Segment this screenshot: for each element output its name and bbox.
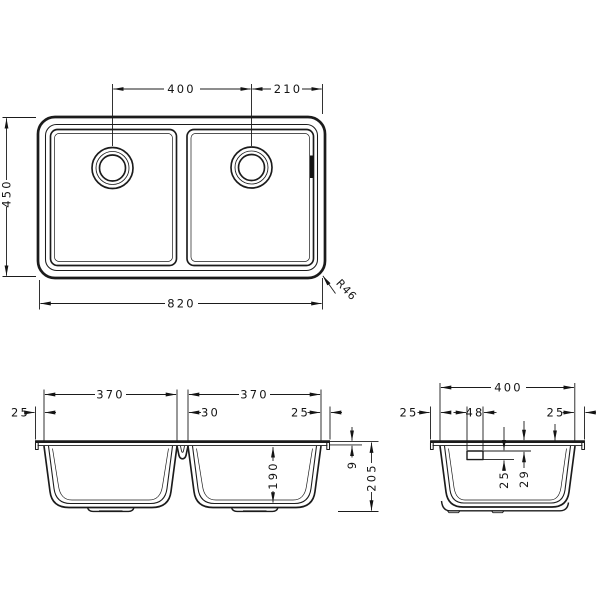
side-left-lip — [431, 443, 434, 450]
front-right-lip — [327, 443, 330, 450]
dim-bowl1-width: 370 — [45, 387, 176, 401]
dim-bowl2-width: 370 — [189, 387, 320, 401]
dim-drain-height: 25 — [497, 427, 511, 489]
dim-label-drain-height: 25 — [497, 470, 511, 489]
dim-overall-depth: 450 — [0, 118, 36, 277]
left-bowl-outline — [51, 130, 177, 266]
top-view: 400 210 450 820 R46 — [0, 82, 359, 311]
dim-rim-to-drain: 29 — [517, 421, 531, 488]
dim-label-corner-radius: R46 — [333, 277, 359, 304]
front-left-lip — [36, 443, 39, 450]
outer-rim-outline — [38, 117, 325, 278]
dim-label-side-left-rim: 25 — [399, 405, 418, 419]
flange-inner-outline — [46, 125, 318, 271]
front-right-bowl — [188, 446, 321, 508]
dim-drain-spacing: 400 210 — [113, 82, 323, 146]
dim-drain-width: 48 — [454, 405, 497, 419]
dim-label-drain-to-edge: 210 — [274, 82, 303, 96]
dim-label-overall-depth: 450 — [0, 179, 13, 208]
dim-front-right-rim: 25 — [291, 405, 342, 419]
dim-label-bowl-depth: 190 — [266, 461, 280, 490]
top-view-body — [38, 117, 325, 278]
side-dimensions: 400 25 48 25 25 — [399, 380, 596, 489]
dim-label-rim-to-drain: 29 — [517, 469, 531, 488]
dim-label-drain-spacing: 400 — [167, 82, 196, 96]
right-bowl-outline — [187, 130, 314, 266]
dim-corner-radius: R46 — [323, 276, 360, 303]
dim-bowl-depth: 190 — [266, 447, 280, 503]
front-left-bowl — [44, 446, 177, 508]
front-view: 370 370 25 30 25 — [11, 387, 379, 511]
dim-side-bowl-width: 400 — [441, 380, 574, 394]
sink-technical-drawing: 400 210 450 820 R46 — [0, 0, 600, 600]
dim-label-bowl2-width: 370 — [240, 387, 269, 401]
side-right-lip — [582, 443, 585, 450]
dim-label-overall-height: 205 — [364, 463, 378, 492]
right-bowl-inner-line — [191, 134, 310, 262]
dim-label-overall-width: 820 — [167, 296, 196, 310]
fixture-mark — [310, 156, 314, 179]
dim-overall-height: 205 — [338, 443, 379, 512]
side-drain-hole — [467, 451, 483, 460]
dim-label-front-right-rim: 25 — [291, 405, 310, 419]
dim-label-rim-thickness: 9 — [345, 460, 359, 470]
dim-overall-width: 820 — [40, 278, 323, 310]
dim-label-bowl1-width: 370 — [96, 387, 125, 401]
dim-label-center-web: 30 — [201, 405, 220, 419]
left-bowl-inner-line — [55, 134, 173, 262]
front-divider — [177, 446, 188, 459]
dim-side-right-rim: 25 — [546, 405, 596, 419]
dim-label-drain-width: 48 — [465, 405, 484, 419]
side-view: 400 25 48 25 25 — [399, 380, 596, 512]
dim-front-left-rim: 25 — [11, 405, 56, 419]
technical-drawing-page: 400 210 450 820 R46 — [0, 0, 600, 600]
dim-side-left-rim: 25 — [399, 405, 451, 419]
dim-center-web: 30 — [189, 405, 220, 419]
front-view-body — [35, 442, 330, 512]
dim-label-side-bowl-width: 400 — [494, 380, 523, 394]
left-drain — [92, 148, 133, 189]
right-drain — [231, 147, 272, 188]
